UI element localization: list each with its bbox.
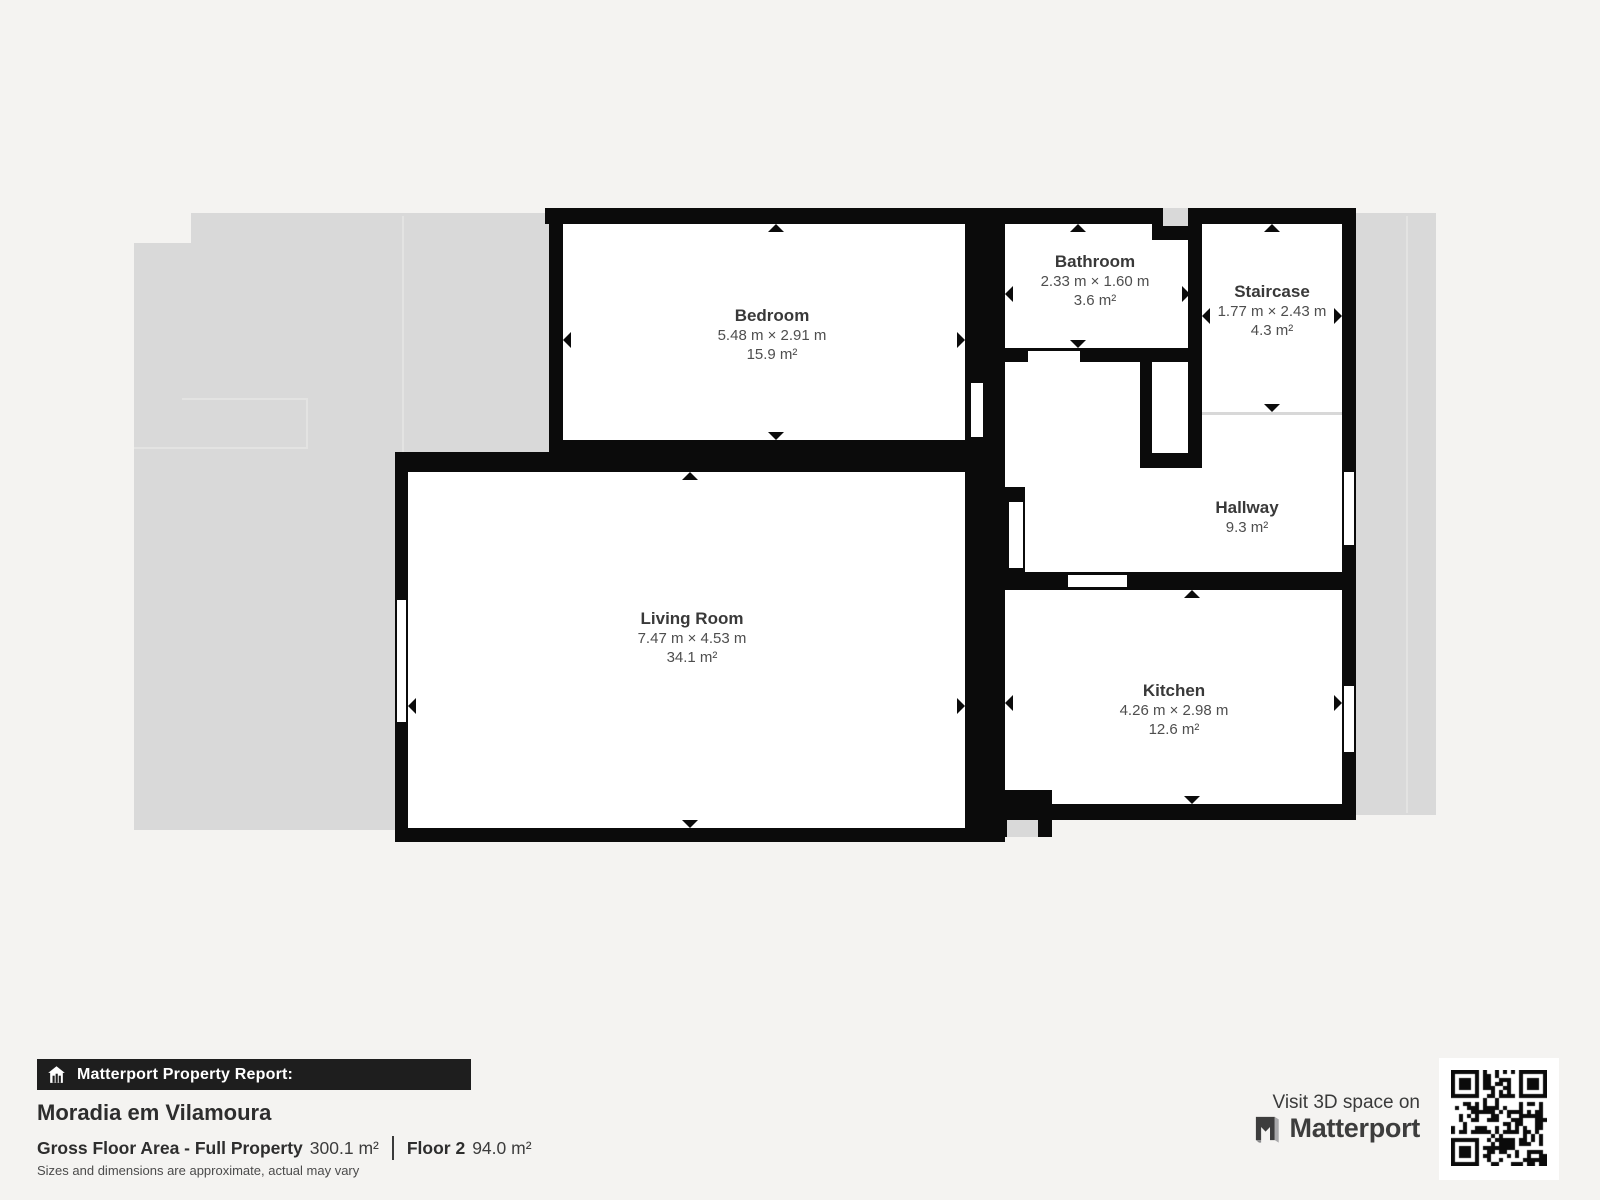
- wall: [1005, 572, 1342, 590]
- room-area: 4.3 m²: [1218, 321, 1327, 340]
- floorplan-underlay: [134, 243, 549, 452]
- dimension-arrow: [957, 332, 965, 348]
- exterior-notch: [1163, 208, 1188, 226]
- room-area: 3.6 m²: [1041, 291, 1150, 310]
- underlay-room-line: [182, 398, 306, 400]
- dimension-arrow: [563, 332, 571, 348]
- wall: [1140, 348, 1152, 468]
- dimension-arrow: [1070, 224, 1086, 232]
- dimension-arrow: [682, 472, 698, 480]
- door-opening-bedroom: [971, 383, 983, 437]
- staircase-hallway-boundary: [1202, 412, 1342, 415]
- window-hallway: [1344, 472, 1354, 545]
- underlay-room-line: [134, 447, 306, 449]
- floorplan-underlay: [1356, 213, 1436, 815]
- room-hallway: [1202, 415, 1342, 572]
- floor-area-value: 94.0 m²: [472, 1138, 531, 1159]
- underlay-room-line: [1406, 216, 1408, 813]
- room-area: 9.3 m²: [1215, 518, 1278, 537]
- matterport-logo: Matterport: [1253, 1113, 1421, 1144]
- floorplan-underlay: [134, 452, 395, 830]
- room-name: Living Room: [638, 608, 747, 629]
- room-label-kitchen: Kitchen 4.26 m × 2.98 m 12.6 m²: [1120, 680, 1229, 739]
- room-dimensions: 4.26 m × 2.98 m: [1120, 701, 1229, 720]
- room-hallway: [1005, 362, 1140, 572]
- wall: [545, 208, 1356, 224]
- room-area: 34.1 m²: [638, 648, 747, 667]
- room-hallway: [1140, 468, 1202, 572]
- dimension-arrow: [768, 224, 784, 232]
- dimension-arrow: [1202, 308, 1210, 324]
- divider: [392, 1136, 394, 1160]
- door-opening-kitchen: [1068, 575, 1127, 587]
- exterior-notch: [1007, 820, 1038, 837]
- room-dimensions: 7.47 m × 4.53 m: [638, 629, 747, 648]
- dimension-arrow: [1184, 796, 1200, 804]
- window-kitchen: [1344, 686, 1354, 752]
- dimension-arrow: [768, 432, 784, 440]
- dimension-arrow: [1005, 695, 1013, 711]
- dimension-arrow: [408, 698, 416, 714]
- floor-label: Floor 2: [407, 1138, 465, 1159]
- room-name: Kitchen: [1120, 680, 1229, 701]
- room-dimensions: 5.48 m × 2.91 m: [718, 326, 827, 345]
- visit-3d-text: Visit 3D space on: [1272, 1092, 1420, 1114]
- room-name: Bedroom: [718, 305, 827, 326]
- dimension-arrow: [1334, 308, 1342, 324]
- wall: [1140, 453, 1202, 468]
- room-area: 12.6 m²: [1120, 720, 1229, 739]
- room-dimensions: 2.33 m × 1.60 m: [1041, 272, 1150, 291]
- dimension-arrow: [682, 820, 698, 828]
- wall: [549, 440, 1005, 472]
- room-label-bedroom: Bedroom 5.48 m × 2.91 m 15.9 m²: [718, 305, 827, 364]
- dimension-arrow: [1334, 695, 1342, 711]
- wall: [549, 208, 563, 458]
- room-label-hallway: Hallway 9.3 m²: [1215, 497, 1278, 537]
- dimension-arrow: [1070, 340, 1086, 348]
- dimension-arrow: [1264, 224, 1280, 232]
- room-name: Hallway: [1215, 497, 1278, 518]
- room-name: Bathroom: [1041, 251, 1150, 272]
- wall: [395, 828, 1005, 842]
- qr-card: [1439, 1058, 1559, 1180]
- window-living-room: [397, 600, 406, 722]
- floor-area-stats: Gross Floor Area - Full Property 300.1 m…: [37, 1136, 532, 1160]
- dimension-arrow: [957, 698, 965, 714]
- floor-plan: Bedroom 5.48 m × 2.91 m 15.9 m² Bathroom…: [0, 0, 1600, 1200]
- door-opening-bathroom: [1028, 351, 1080, 362]
- closet-shaft: [1152, 362, 1188, 453]
- report-banner: Matterport Property Report:: [37, 1059, 471, 1090]
- dimension-arrow: [1184, 590, 1200, 598]
- wall: [1188, 224, 1202, 468]
- matterport-house-icon: [47, 1065, 66, 1084]
- property-name: Moradia em Vilamoura: [37, 1100, 271, 1126]
- gross-floor-area-label: Gross Floor Area - Full Property: [37, 1138, 303, 1159]
- matterport-mark-icon: [1253, 1114, 1282, 1143]
- report-banner-label: Matterport Property Report:: [77, 1066, 293, 1084]
- floorplan-underlay: [191, 213, 549, 243]
- wall: [395, 452, 549, 472]
- underlay-room-line: [306, 398, 308, 449]
- door-opening-living-room: [1009, 502, 1023, 568]
- matterport-wordmark: Matterport: [1290, 1113, 1421, 1144]
- gross-floor-area-value: 300.1 m²: [310, 1138, 379, 1159]
- disclaimer-text: Sizes and dimensions are approximate, ac…: [37, 1163, 359, 1178]
- room-label-staircase: Staircase 1.77 m × 2.43 m 4.3 m²: [1218, 281, 1327, 340]
- dimension-arrow: [1182, 286, 1190, 302]
- underlay-room-line: [402, 216, 404, 452]
- dimension-arrow: [1264, 404, 1280, 412]
- room-label-living-room: Living Room 7.47 m × 4.53 m 34.1 m²: [638, 608, 747, 667]
- dimension-arrow: [1005, 286, 1013, 302]
- room-dimensions: 1.77 m × 2.43 m: [1218, 302, 1327, 321]
- room-label-bathroom: Bathroom 2.33 m × 1.60 m 3.6 m²: [1041, 251, 1150, 310]
- qr-code: [1451, 1070, 1547, 1166]
- room-name: Staircase: [1218, 281, 1327, 302]
- room-area: 15.9 m²: [718, 345, 827, 364]
